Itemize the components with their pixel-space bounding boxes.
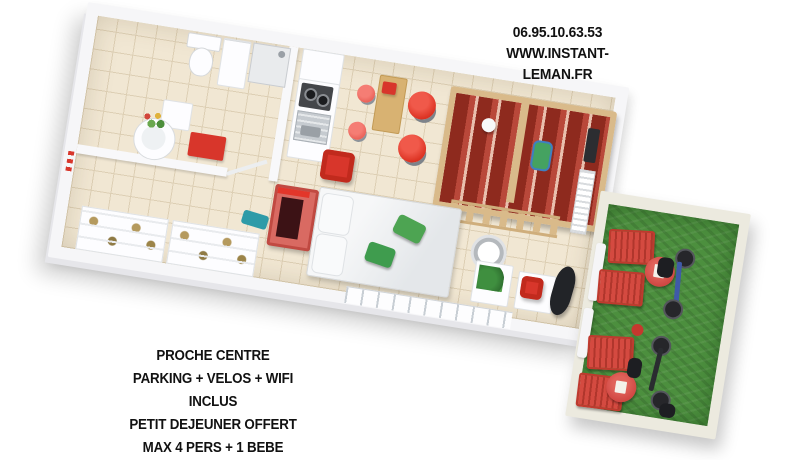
pillow xyxy=(317,192,355,237)
contact-block: 06.95.10.63.53 WWW.INSTANT-LEMAN.FR xyxy=(472,22,642,85)
desk-red-chair xyxy=(519,275,544,300)
pillow xyxy=(310,233,348,278)
feature-line: PARKING + VELOS + WIFI INCLUS xyxy=(112,368,314,414)
feature-line: PETIT DEJEUNER OFFERT xyxy=(112,414,314,437)
flower-vase-icon xyxy=(139,108,168,134)
phone-number: 06.95.10.63.53 xyxy=(472,22,642,43)
feature-line: MAX 4 PERS + 1 BEBE xyxy=(112,437,314,460)
website-url: WWW.INSTANT-LEMAN.FR xyxy=(472,43,642,85)
table-setting xyxy=(614,380,627,394)
feature-line: PROCHE CENTRE xyxy=(112,345,314,368)
shower-icon xyxy=(247,42,291,87)
tv-screen xyxy=(276,197,304,240)
baby-chair xyxy=(381,81,397,95)
plant-icon xyxy=(476,265,505,293)
sun-lounger xyxy=(596,269,645,307)
red-armchair xyxy=(319,149,355,184)
features-block: PROCHE CENTRE PARKING + VELOS + WIFI INC… xyxy=(112,345,314,460)
sun-lounger xyxy=(608,229,656,265)
